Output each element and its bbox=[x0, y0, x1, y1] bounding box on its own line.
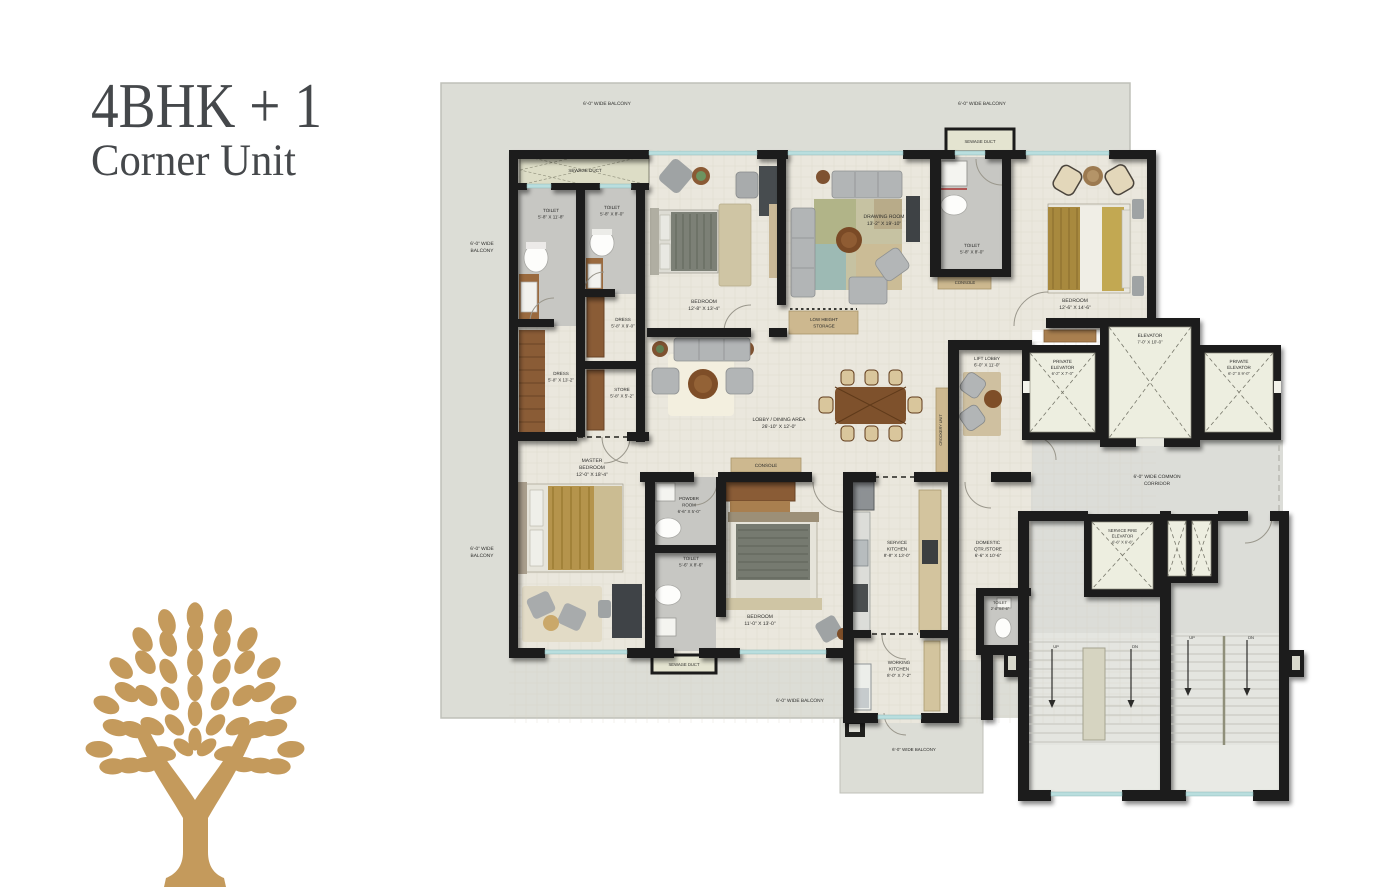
svg-text:6'-0" WIDE: 6'-0" WIDE bbox=[470, 546, 493, 552]
svg-text:5'-8" X 8'-0": 5'-8" X 8'-0" bbox=[600, 212, 624, 217]
svg-text:BALCONY: BALCONY bbox=[471, 248, 495, 254]
svg-text:ROOM: ROOM bbox=[682, 502, 696, 507]
svg-text:6'-6" X 5'-0": 6'-6" X 5'-0" bbox=[678, 509, 701, 514]
svg-text:ELEVATOR: ELEVATOR bbox=[1227, 365, 1251, 370]
svg-text:5'-8" X 9'-0": 5'-8" X 9'-0" bbox=[611, 324, 635, 329]
svg-text:12'-6" X 14'-6": 12'-6" X 14'-6" bbox=[1059, 305, 1091, 311]
svg-text:DRAWING ROOM: DRAWING ROOM bbox=[864, 214, 905, 220]
svg-text:CORRIDOR: CORRIDOR bbox=[1144, 481, 1171, 487]
svg-text:BEDROOM: BEDROOM bbox=[1062, 298, 1088, 304]
svg-text:13'-2" X 19'-10": 13'-2" X 19'-10" bbox=[867, 221, 902, 227]
svg-text:UP: UP bbox=[1053, 644, 1059, 649]
svg-text:SERVICE: SERVICE bbox=[887, 540, 907, 545]
svg-text:BEDROOM: BEDROOM bbox=[579, 465, 605, 471]
svg-text:Corner Unit: Corner Unit bbox=[91, 135, 296, 185]
svg-text:6'-0" WIDE BALCONY: 6'-0" WIDE BALCONY bbox=[583, 101, 631, 107]
svg-text:LIFT LOBBY: LIFT LOBBY bbox=[974, 356, 1000, 361]
svg-text:TOILET: TOILET bbox=[964, 243, 980, 248]
svg-text:QTR./STORE: QTR./STORE bbox=[974, 547, 1002, 552]
svg-text:5'-8" X 13'-2": 5'-8" X 13'-2" bbox=[548, 378, 574, 383]
svg-text:7'-0" X 10'-0": 7'-0" X 10'-0" bbox=[1137, 339, 1163, 344]
svg-text:BEDROOM: BEDROOM bbox=[691, 299, 717, 305]
svg-text:12'-0" X 18'-4": 12'-0" X 18'-4" bbox=[576, 472, 608, 478]
svg-text:SEWAGE DUCT: SEWAGE DUCT bbox=[568, 168, 602, 173]
svg-text:6'-0" WIDE COMMON: 6'-0" WIDE COMMON bbox=[1133, 474, 1181, 480]
svg-text:TOILET: TOILET bbox=[993, 600, 1007, 605]
svg-text:6'-2" X 9'-0": 6'-2" X 9'-0" bbox=[1228, 371, 1250, 376]
svg-text:CROCKERY UNIT: CROCKERY UNIT bbox=[939, 414, 943, 446]
svg-text:DRESS: DRESS bbox=[615, 317, 631, 322]
svg-text:5'-8" X 5'-2": 5'-8" X 5'-2" bbox=[610, 394, 634, 399]
svg-text:5'-8" X 8'-0": 5'-8" X 8'-0" bbox=[960, 250, 984, 255]
svg-text:5'-8" X 11'-8": 5'-8" X 11'-8" bbox=[538, 215, 564, 220]
svg-text:PRIVATE: PRIVATE bbox=[1053, 359, 1072, 364]
svg-text:POWDER: POWDER bbox=[679, 496, 699, 501]
svg-text:BALCONY: BALCONY bbox=[471, 553, 495, 559]
svg-text:SERVICE FIRE: SERVICE FIRE bbox=[1108, 528, 1137, 533]
svg-text:DN: DN bbox=[1132, 644, 1138, 649]
svg-text:PRIVATE: PRIVATE bbox=[1230, 359, 1249, 364]
svg-text:BEDROOM: BEDROOM bbox=[747, 614, 773, 620]
svg-text:26'-10" X 12'-0": 26'-10" X 12'-0" bbox=[762, 424, 797, 430]
svg-text:UP: UP bbox=[1189, 635, 1195, 640]
svg-text:6'-2" X 7'-0": 6'-2" X 7'-0" bbox=[1052, 371, 1074, 376]
svg-text:ELEVATOR: ELEVATOR bbox=[1138, 333, 1163, 339]
svg-text:8'-8" X 13'-0": 8'-8" X 13'-0" bbox=[884, 553, 911, 558]
svg-text:DN: DN bbox=[1248, 635, 1254, 640]
svg-text:ELEVATOR: ELEVATOR bbox=[1112, 534, 1134, 539]
svg-text:STORAGE: STORAGE bbox=[813, 323, 834, 328]
svg-text:TOILET: TOILET bbox=[543, 208, 559, 213]
svg-text:ELEVATOR: ELEVATOR bbox=[1051, 365, 1075, 370]
svg-text:6'-0" WIDE BALCONY: 6'-0" WIDE BALCONY bbox=[958, 101, 1006, 107]
svg-text:CONSOLE: CONSOLE bbox=[755, 463, 777, 468]
svg-text:2'-6"X4'-6": 2'-6"X4'-6" bbox=[991, 606, 1010, 611]
svg-text:11'-0" X 13'-0": 11'-0" X 13'-0" bbox=[744, 621, 775, 627]
svg-text:STORE: STORE bbox=[614, 387, 629, 392]
svg-text:6'-6" X 6'-6": 6'-6" X 6'-6" bbox=[1112, 539, 1133, 544]
svg-text:6'-6" X 10'-6": 6'-6" X 10'-6" bbox=[975, 553, 1002, 558]
svg-text:TOILET: TOILET bbox=[683, 556, 699, 561]
svg-text:DOMESTIC: DOMESTIC bbox=[976, 540, 1001, 545]
svg-text:LOBBY / DINING AREA: LOBBY / DINING AREA bbox=[753, 417, 807, 423]
svg-text:5'-6" X 8'-6": 5'-6" X 8'-6" bbox=[679, 563, 703, 568]
svg-text:12'-8" X 13'-4": 12'-8" X 13'-4" bbox=[688, 306, 720, 312]
svg-text:6'-0" WIDE BALCONY: 6'-0" WIDE BALCONY bbox=[776, 698, 824, 704]
svg-text:6'-0" X 11'-0": 6'-0" X 11'-0" bbox=[974, 363, 1000, 368]
svg-text:KITCHEN: KITCHEN bbox=[887, 547, 907, 552]
svg-text:6'-0" WIDE: 6'-0" WIDE bbox=[470, 241, 493, 247]
svg-text:SEWAGE DUCT: SEWAGE DUCT bbox=[964, 139, 995, 144]
svg-text:SEWAGE DUCT: SEWAGE DUCT bbox=[668, 662, 699, 667]
svg-text:CONSOLE: CONSOLE bbox=[955, 280, 976, 285]
svg-text:TOILET: TOILET bbox=[604, 205, 620, 210]
svg-text:6'-0" WIDE BALCONY: 6'-0" WIDE BALCONY bbox=[892, 747, 936, 752]
svg-text:8'-0" X 7'-2": 8'-0" X 7'-2" bbox=[887, 673, 911, 678]
svg-text:DRESS: DRESS bbox=[553, 371, 569, 376]
svg-text:MASTER: MASTER bbox=[582, 458, 603, 464]
svg-text:KITCHEN: KITCHEN bbox=[889, 667, 909, 672]
svg-text:WORKING: WORKING bbox=[888, 660, 911, 665]
svg-text:4BHK + 1: 4BHK + 1 bbox=[91, 70, 322, 141]
svg-text:LOW HEIGHT: LOW HEIGHT bbox=[810, 317, 838, 322]
